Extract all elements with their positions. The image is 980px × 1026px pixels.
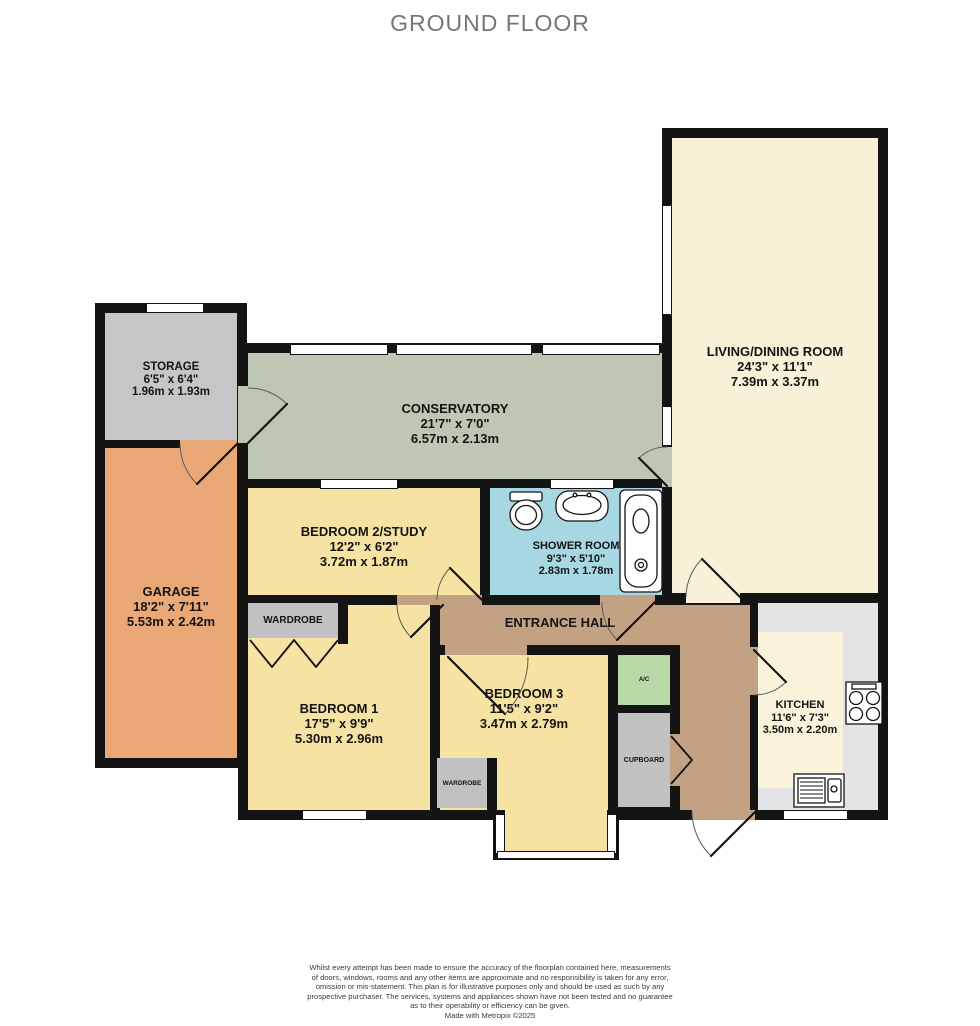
label-entrance-hall: ENTRANCE HALL <box>440 615 680 630</box>
opening-front-door <box>692 810 755 820</box>
wall-wardrobe1-post <box>338 600 348 644</box>
label-bedroom1: BEDROOM 1 17'5" x 9'9" 5.30m x 2.96m <box>248 701 430 746</box>
disclaimer-line: as to their operability or efficiency ca… <box>0 1001 980 1011</box>
opening-shower-door <box>600 595 655 605</box>
disclaimer-line: of doors, windows, rooms and any other i… <box>0 973 980 983</box>
label-garage: GARAGE 18'2" x 7'11" 5.53m x 2.42m <box>105 584 237 629</box>
room-entrance-hall-v <box>680 645 750 810</box>
label-wardrobe-bedroom1: WARDROBE <box>248 603 338 638</box>
disclaimer-line: Whilst every attempt has been made to en… <box>0 963 980 973</box>
wall-wardrobe3-post <box>487 758 497 810</box>
label-cupboard: CUPBOARD <box>618 713 670 807</box>
window-living-left <box>662 205 672 315</box>
window-shower-top <box>550 479 614 489</box>
opening-bedroom1-door <box>397 595 443 605</box>
opening-bedroom2-door <box>437 595 482 605</box>
bay-window-right <box>607 814 617 854</box>
disclaimer: Whilst every attempt has been made to en… <box>0 963 980 1021</box>
bay-window-floor <box>505 810 607 852</box>
window-storage <box>146 303 204 313</box>
label-storage: STORAGE 6'5" x 6'4" 1.96m x 1.93m <box>105 361 237 399</box>
disclaimer-line: Made with Metropix ©2025 <box>0 1011 980 1021</box>
opening-kitchen-door <box>750 647 758 695</box>
window-conservatory-living <box>662 406 672 446</box>
opening-storage-garage <box>180 440 237 448</box>
label-kitchen: KITCHEN 11'6" x 7'3" 3.50m x 2.20m <box>750 699 850 737</box>
floor-plan: GROUND FLOOR STORAGE 6 <box>0 0 980 1026</box>
disclaimer-line: omission or mis-statement. This plan is … <box>0 982 980 992</box>
window-conservatory-3 <box>542 344 660 355</box>
window-bedroom1-front <box>302 810 367 820</box>
opening-living-hall-door <box>686 593 740 603</box>
label-conservatory: CONSERVATORY 21'7" x 7'0" 6.57m x 2.13m <box>248 401 662 446</box>
label-living-dining: LIVING/DINING ROOM 24'3" x 11'1" 7.39m x… <box>672 344 878 389</box>
page-title: GROUND FLOOR <box>0 10 980 37</box>
label-bedroom3: BEDROOM 3 11'5" x 9'2" 3.47m x 2.79m <box>440 686 608 731</box>
label-bedroom2-study: BEDROOM 2/STUDY 12'2" x 6'2" 3.72m x 1.8… <box>248 524 480 569</box>
label-shower-room: SHOWER ROOM 9'3" x 5'10" 2.83m x 1.78m <box>490 540 662 578</box>
window-kitchen-front <box>783 810 848 820</box>
opening-conservatory-living <box>662 447 672 487</box>
window-bedroom2-top <box>320 479 398 489</box>
label-airing-cupboard: A/C <box>618 655 670 705</box>
opening-storage-conservatory <box>238 386 248 443</box>
label-wardrobe-bedroom3: WARDROBE <box>437 758 487 808</box>
disclaimer-line: prospective purchaser. The services, sys… <box>0 992 980 1002</box>
opening-cupboard-bifold <box>670 734 680 786</box>
window-conservatory-2 <box>396 344 532 355</box>
bay-window-front <box>497 851 615 859</box>
opening-bedroom3-door <box>445 645 527 655</box>
window-conservatory-1 <box>290 344 388 355</box>
bay-window-left <box>495 814 505 854</box>
